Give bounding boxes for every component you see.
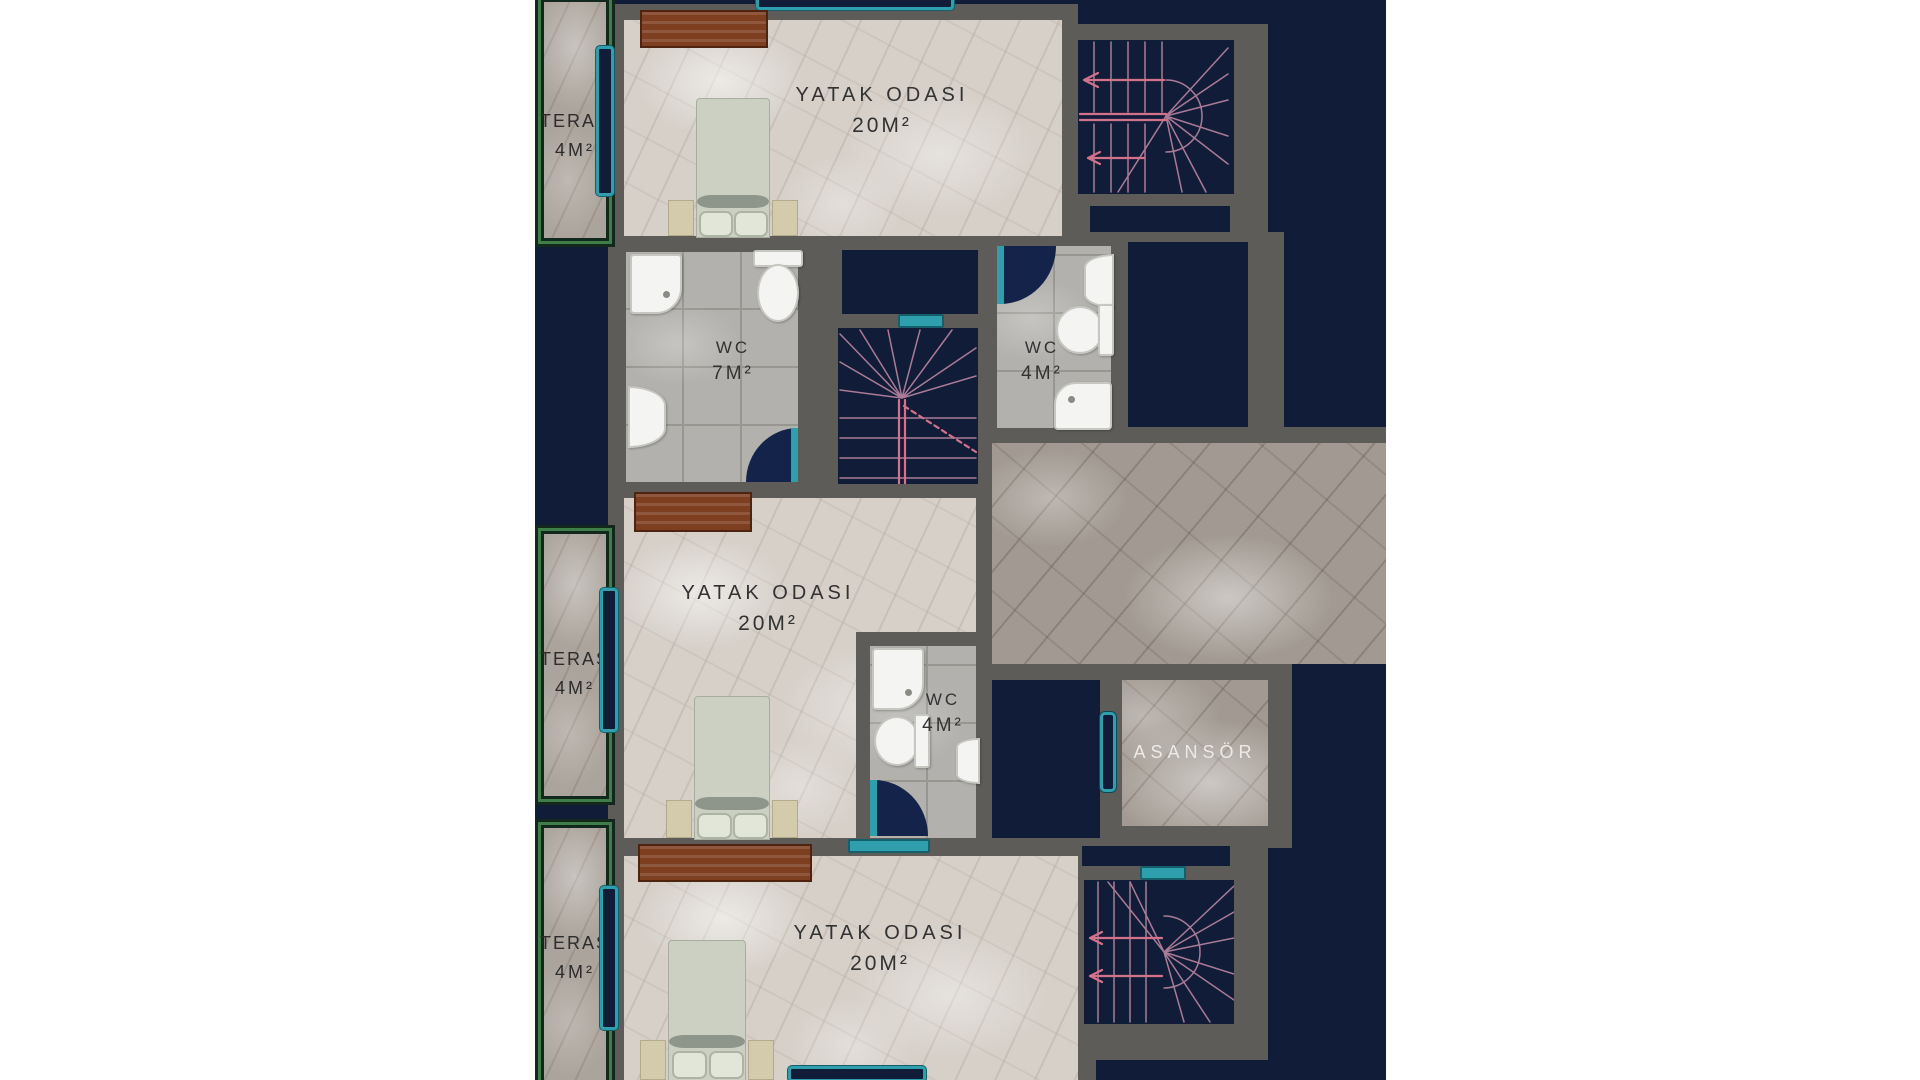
hall-floor — [992, 443, 1386, 664]
wc-middle-name: WC — [926, 690, 960, 710]
shower-symbol-wc-large — [630, 254, 682, 314]
door-marker-closet — [898, 314, 944, 328]
bedroom-middle-name: YATAK ODASI — [682, 582, 855, 605]
toilet-symbol-wc-large — [757, 264, 799, 322]
wardrobe-symbol-bottom — [638, 844, 812, 882]
nightstand-bottom-right — [748, 1040, 774, 1080]
teras-bottom-label: TERAS 4M² — [541, 933, 609, 983]
room-elevator: ASANSÖR — [1122, 680, 1268, 826]
floor-plan-page: TERAS 4M² TERAS 4M² TERAS 4M² ASANSÖR — [0, 0, 1920, 1080]
bedroom-top-label: YATAK ODASI 20M² — [762, 84, 1002, 138]
wc-large-label: WC 7M² — [688, 338, 778, 385]
sink-symbol-wc-right — [1084, 254, 1114, 308]
bedroom-top-area: 20M² — [852, 114, 912, 138]
teras-middle-label: TERAS 4M² — [541, 649, 609, 699]
wc-right-label: WC 4M² — [1000, 338, 1084, 385]
stair-bottom-landing — [1082, 846, 1230, 866]
door-marker-bedrooms-shared-wall — [848, 839, 930, 853]
stair-top-landing — [1090, 206, 1230, 232]
wc-large-area: 7M² — [712, 363, 754, 385]
wall-hall-top — [976, 427, 1386, 443]
stair-icon-bottom — [1084, 880, 1234, 1024]
wardrobe-symbol-top — [640, 10, 768, 48]
stair-icon-middle — [838, 328, 978, 484]
toilet-tank-wc-right — [1098, 304, 1114, 356]
shaft-void — [1128, 242, 1248, 427]
teras-middle-area: 4M² — [555, 678, 595, 699]
bedroom-middle-area: 20M² — [738, 612, 798, 636]
wardrobe-symbol-middle — [634, 492, 752, 532]
bed-symbol-top — [696, 98, 770, 238]
window-marker-bottom-wall — [788, 1066, 926, 1080]
bed-symbol-middle — [694, 696, 770, 840]
bedroom-middle-label: YATAK ODASI 20M² — [648, 582, 888, 636]
bed-symbol-bottom — [668, 940, 746, 1080]
elevator-door-icon — [1100, 712, 1116, 792]
elevator-label: ASANSÖR — [1122, 742, 1268, 763]
door-marker-stair-bottom — [1140, 866, 1186, 880]
bedroom-bottom-name: YATAK ODASI — [794, 922, 967, 945]
window-marker-top-wall — [756, 0, 954, 10]
bedroom-top-name: YATAK ODASI — [796, 84, 969, 107]
nightstand-middle-left — [666, 800, 692, 838]
wc-middle-area: 4M² — [922, 715, 964, 737]
window-marker-bedroom-middle-left — [600, 588, 618, 732]
nightstand-bottom-left — [640, 1040, 666, 1080]
window-marker-bedroom-bottom-left — [600, 886, 618, 1030]
wc-right-area: 4M² — [1021, 363, 1063, 385]
bedroom-bottom-area: 20M² — [850, 952, 910, 976]
shower-symbol-wc-right — [1054, 382, 1112, 430]
sink-symbol-wc-large — [628, 386, 666, 448]
nightstand-middle-right — [772, 800, 798, 838]
wc-large-name: WC — [716, 338, 750, 358]
nightstand-top-left — [668, 200, 694, 236]
closet-recess — [842, 250, 978, 314]
teras-top-area: 4M² — [555, 140, 595, 161]
nightstand-top-right — [772, 200, 798, 236]
wc-middle-label: WC 4M² — [906, 690, 980, 737]
sink-symbol-wc-middle — [956, 738, 980, 784]
wc-right-name: WC — [1025, 338, 1059, 358]
window-marker-bedroom-top-left — [596, 46, 614, 196]
bedroom-bottom-label: YATAK ODASI 20M² — [760, 922, 1000, 976]
teras-bottom-area: 4M² — [555, 962, 595, 983]
stair-icon-top — [1078, 40, 1234, 194]
